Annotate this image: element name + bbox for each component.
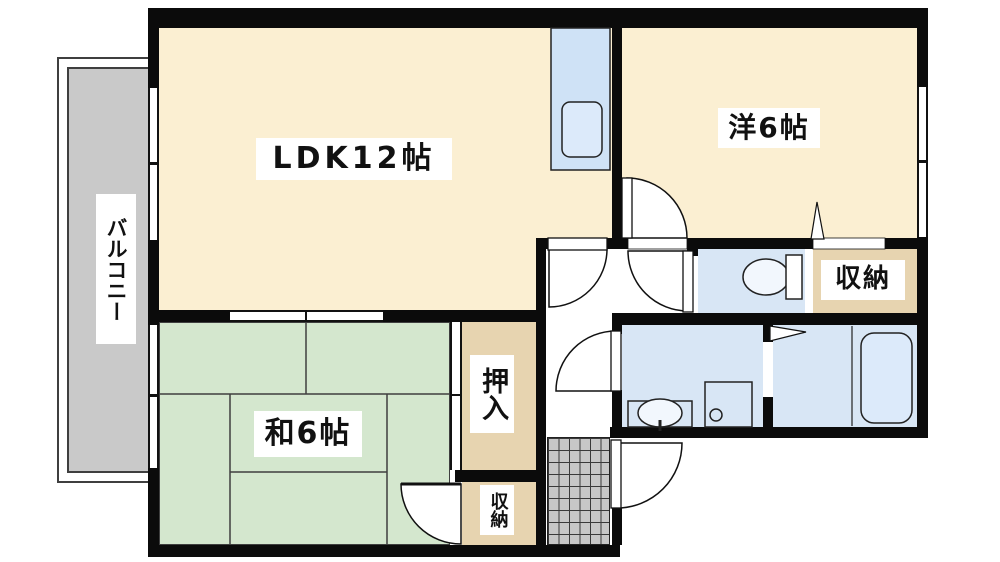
sliding-door-tick <box>305 312 307 320</box>
wall-segment <box>885 238 928 249</box>
wall-segment <box>148 8 159 88</box>
entrance-door-leaf <box>611 440 621 508</box>
wall-segment <box>148 545 620 557</box>
sliding-door-tick <box>452 394 460 396</box>
wall-segment <box>687 238 813 249</box>
window-center-tick <box>150 162 157 165</box>
floorplan: LDK12帖 洋6帖 和6帖 押入 収納 収納 バルコニー <box>0 0 1000 562</box>
wall-segment <box>612 325 622 334</box>
wall-segment <box>763 325 773 342</box>
ldk-balcony-window <box>148 88 159 240</box>
oshiire-sliding-door <box>450 322 462 470</box>
wall-segment <box>612 390 622 427</box>
hallway-floor <box>546 248 612 437</box>
wall-segment <box>763 397 773 427</box>
balcony-label: バルコニー <box>96 194 136 344</box>
western-room-label: 洋6帖 <box>718 108 820 148</box>
room-toilet <box>698 248 805 313</box>
wall-segment <box>612 508 622 545</box>
room-bath <box>773 325 917 427</box>
wall-segment <box>917 237 928 438</box>
japanese-room-label: 和6帖 <box>254 411 362 457</box>
wall-segment <box>536 238 546 557</box>
entrance-door-swing <box>617 443 682 508</box>
wall-segment <box>148 8 928 28</box>
wall-segment <box>612 313 928 325</box>
wall-segment <box>917 8 928 87</box>
wall-segment <box>687 238 698 256</box>
hallway-vestibule <box>612 248 698 313</box>
japanese-balcony-window <box>148 325 159 468</box>
wall-segment <box>610 427 928 438</box>
western-window <box>917 87 928 237</box>
wall-segment <box>455 470 538 482</box>
ldk-label: LDK12帖 <box>256 138 452 180</box>
ldk-japanese-sliding-door <box>230 310 383 322</box>
wall-segment <box>612 28 622 238</box>
wall-segment <box>148 468 159 557</box>
oshiire-label: 押入 <box>470 355 514 433</box>
wall-segment <box>607 238 628 249</box>
entrance-tiles <box>547 437 610 545</box>
window-center-tick <box>919 160 926 163</box>
room-washroom <box>622 325 763 427</box>
washroom-door-leaf <box>611 331 621 391</box>
wall-segment <box>383 310 546 322</box>
storage-upper-label: 収納 <box>821 260 905 300</box>
window-center-tick <box>150 394 157 397</box>
wall-segment <box>148 310 230 322</box>
storage-lower-label: 収納 <box>480 485 514 535</box>
